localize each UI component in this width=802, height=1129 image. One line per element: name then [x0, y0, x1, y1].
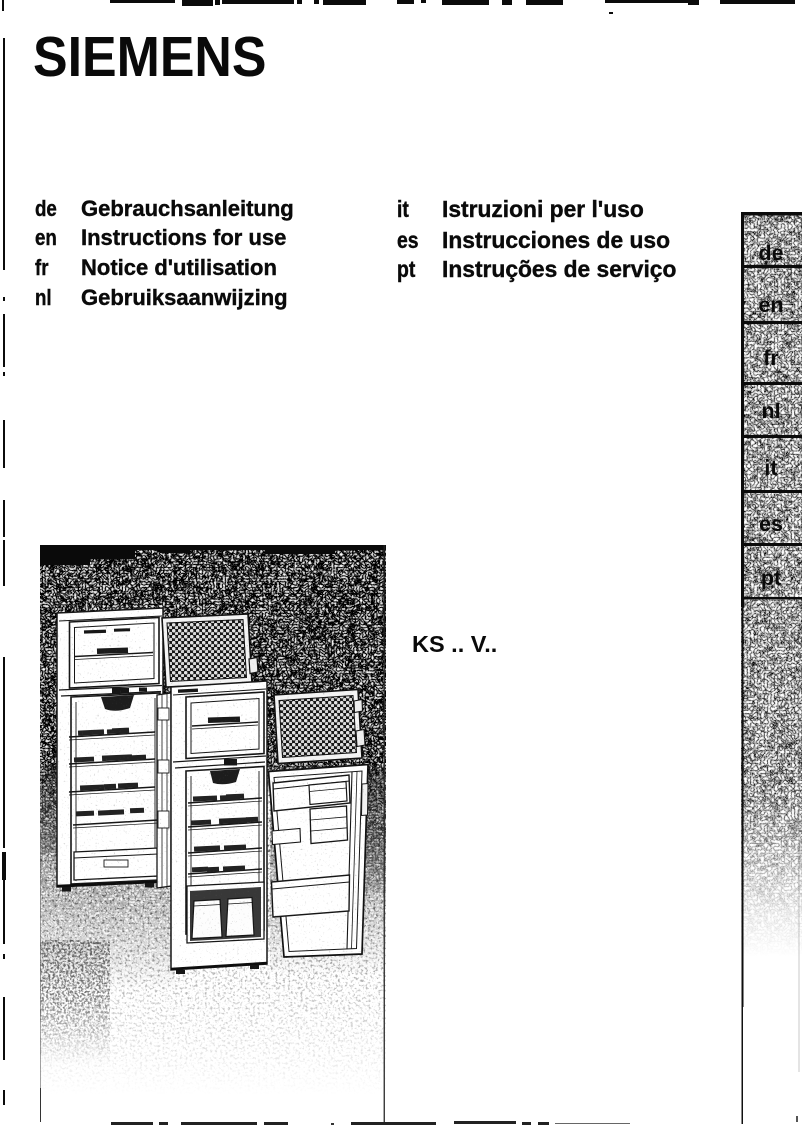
svg-text:pt: pt: [761, 566, 781, 590]
svg-text:it: it: [764, 456, 777, 480]
svg-text:de: de: [758, 241, 783, 265]
svg-text:fr: fr: [763, 346, 779, 370]
svg-text:nl: nl: [761, 399, 780, 423]
svg-text:en: en: [758, 293, 783, 317]
svg-text:es: es: [759, 512, 783, 536]
